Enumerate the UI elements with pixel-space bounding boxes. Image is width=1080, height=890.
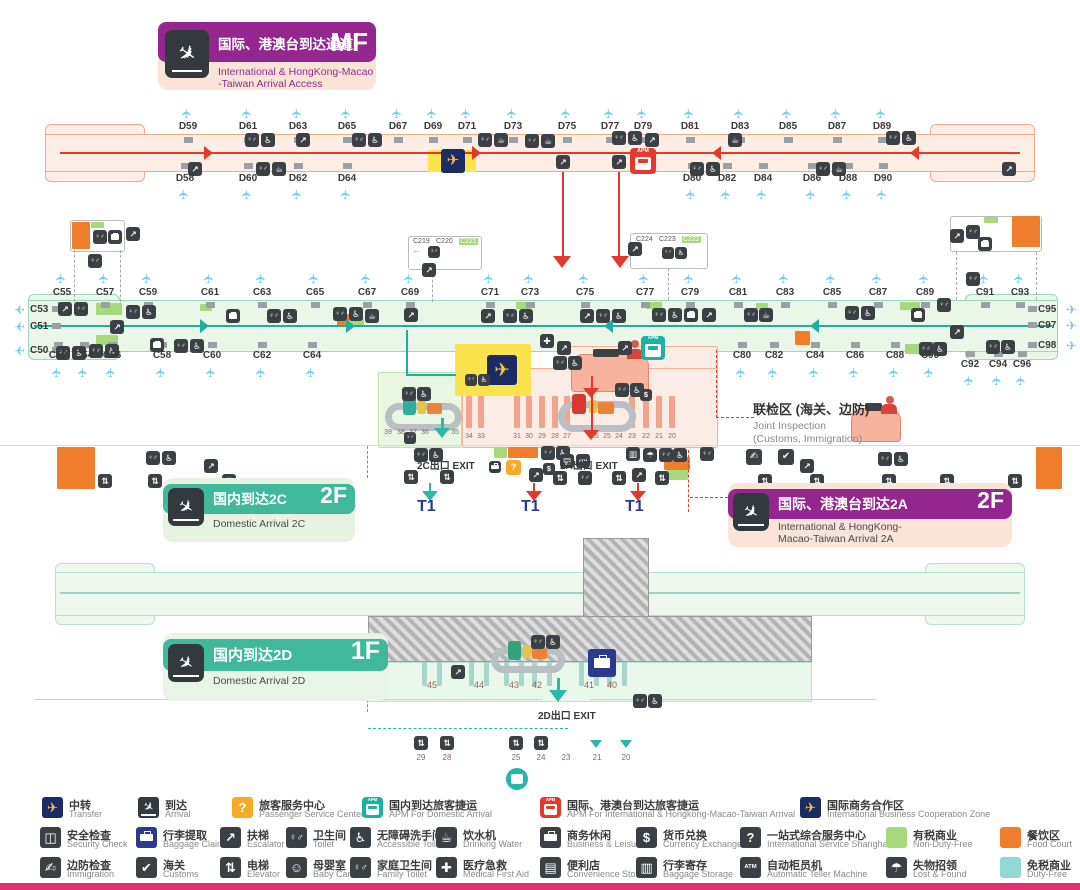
plane-icon: ✈ bbox=[50, 367, 63, 378]
gate-label-D87: D87 bbox=[828, 121, 846, 132]
toilet-icon: ♀♂ bbox=[267, 309, 281, 323]
satellite-link bbox=[74, 250, 75, 302]
plane-icon: ✈ bbox=[824, 273, 837, 284]
immigration-icon: ✍ bbox=[40, 857, 61, 878]
family-icon: ♀♂ bbox=[350, 857, 371, 878]
arrival-plane-icon: ✈ bbox=[168, 488, 204, 526]
gate-label-D79: D79 bbox=[634, 121, 652, 132]
gate-stub-D71 bbox=[463, 137, 472, 143]
accessible-icon: ♿ bbox=[478, 374, 490, 386]
toilet-icon: ♀♂ bbox=[612, 131, 626, 145]
accessible-icon: ♿ bbox=[261, 133, 275, 147]
shop-block bbox=[666, 470, 688, 480]
accessible-icon: ♿ bbox=[368, 133, 382, 147]
escalator-icon: ↗ bbox=[481, 309, 495, 323]
toilet-icon: ♀♂ bbox=[256, 162, 270, 176]
gate-stub-C57 bbox=[101, 302, 110, 308]
d2-path-dash bbox=[368, 728, 568, 729]
baby-icon: ☺ bbox=[286, 857, 307, 878]
gate-stub-C86 bbox=[851, 342, 860, 348]
elevator-icon: ⇅ bbox=[440, 736, 454, 750]
gate-label-D77: D77 bbox=[601, 121, 619, 132]
service-icon: ? bbox=[506, 460, 521, 475]
swatch-green-icon bbox=[886, 827, 907, 848]
accessible-icon: ♿ bbox=[519, 309, 533, 323]
toilet-icon: ♀♂ bbox=[633, 694, 647, 708]
escalator-icon: ↗ bbox=[422, 263, 436, 277]
toilet-icon: ♀♂ bbox=[88, 254, 102, 268]
plane-icon: ✈ bbox=[14, 344, 25, 357]
gate-stub-C71 bbox=[486, 302, 495, 308]
badge-title: 国际、港澳台到达2A bbox=[778, 494, 908, 514]
immigration-icon: ✍ bbox=[746, 449, 762, 465]
gate-stub-C98 bbox=[1028, 342, 1037, 348]
door-numbers: 29 bbox=[417, 753, 426, 762]
gate-stub-C97 bbox=[1028, 322, 1037, 328]
plane-icon: ✈ bbox=[290, 108, 303, 119]
flow-arrow bbox=[553, 256, 571, 268]
plane-icon: ✈ bbox=[559, 108, 572, 119]
plane-icon: ✈ bbox=[304, 367, 317, 378]
gate-stub-C67 bbox=[363, 302, 372, 308]
exit-2d-stub bbox=[557, 678, 560, 690]
luggage bbox=[427, 403, 442, 414]
mf-badge-code: MF bbox=[330, 27, 368, 58]
gate-stub-D62 bbox=[294, 163, 303, 169]
door-numbers: 25 bbox=[512, 753, 521, 762]
plane-icon: ✈ bbox=[807, 367, 820, 378]
accessible-icon: ♿ bbox=[673, 448, 687, 462]
gate-stub-C64 bbox=[308, 342, 317, 348]
gate-label-C69: C69 bbox=[401, 287, 419, 298]
baggage-lane bbox=[552, 396, 558, 428]
floor-separator bbox=[0, 445, 1080, 446]
gate-stub-D75 bbox=[563, 137, 572, 143]
badge-subtitle: International & HongKong- bbox=[778, 521, 902, 533]
legend-label-en: Drinking Water bbox=[463, 839, 522, 849]
plane-icon: ✈ bbox=[730, 273, 743, 284]
luggage bbox=[532, 648, 547, 659]
plane-icon: ✈ bbox=[922, 367, 935, 378]
escalator-icon: ↗ bbox=[404, 308, 418, 322]
gate-stub-C75 bbox=[581, 302, 590, 308]
customs-icon: ✔ bbox=[136, 857, 157, 878]
escalator-icon: ↗ bbox=[529, 468, 543, 482]
gate-label-C96: C96 bbox=[1013, 359, 1031, 370]
legend-label-en: Food Court bbox=[1027, 839, 1072, 849]
plane-icon: ✈ bbox=[140, 273, 153, 284]
gate-label-C51: C51 bbox=[30, 321, 48, 332]
plane-icon: ✈ bbox=[177, 189, 190, 200]
toilet-icon: ♀♂ bbox=[596, 309, 610, 323]
escalator-icon: ↗ bbox=[645, 133, 659, 147]
arrivals-corridor bbox=[55, 572, 1025, 616]
joint-callout-dash bbox=[716, 417, 754, 418]
gate-stub-D85 bbox=[784, 137, 793, 143]
officer-icon bbox=[886, 396, 894, 404]
escalator-icon: ↗ bbox=[632, 468, 646, 482]
plane-icon: ✈ bbox=[962, 375, 975, 386]
bus-icon bbox=[506, 768, 528, 790]
officer-icon bbox=[881, 404, 897, 414]
plane-icon: ✈ bbox=[202, 273, 215, 284]
lost-icon: ☂ bbox=[886, 857, 907, 878]
gate-stub-D81 bbox=[686, 137, 695, 143]
legend-label-en: Baggage Claim bbox=[163, 839, 225, 849]
gate-label-D90: D90 bbox=[874, 173, 892, 184]
gate-label-D89: D89 bbox=[873, 121, 891, 132]
structure-core bbox=[583, 538, 649, 618]
gate-label-D71: D71 bbox=[458, 121, 476, 132]
drink-icon: ☕ bbox=[272, 162, 286, 176]
elevator-icon: ⇅ bbox=[553, 471, 567, 485]
toilet-icon: ♀♂ bbox=[652, 308, 666, 322]
gate-label-C84: C84 bbox=[806, 350, 824, 361]
toilet-icon: ♀♂ bbox=[659, 448, 673, 462]
joint-en1: Joint Inspection bbox=[753, 420, 869, 432]
domestic-carousel-numbers: 39 bbox=[384, 429, 392, 436]
escalator-icon: ↗ bbox=[58, 302, 72, 316]
accessible-icon: ♿ bbox=[648, 694, 662, 708]
legend-label-en: Transfer bbox=[69, 809, 102, 819]
gate-stub-D82 bbox=[723, 163, 732, 169]
legend-label-en: APM For International & Hongkong-Macao-T… bbox=[567, 809, 795, 819]
gate-label-C52: C52 bbox=[49, 350, 67, 361]
plane-icon: ✈ bbox=[14, 320, 25, 333]
gate-label-D67: D67 bbox=[389, 121, 407, 132]
flow-arrow bbox=[549, 690, 567, 702]
desk-laptop bbox=[593, 349, 619, 358]
accessible-icon: ♿ bbox=[350, 827, 371, 848]
lost-icon: ☂ bbox=[643, 448, 657, 462]
gate-c220: C220 bbox=[436, 238, 453, 245]
toilet-icon: ♀♂ bbox=[74, 302, 88, 316]
accessible-icon: ♿ bbox=[668, 308, 682, 322]
plane-icon: ✈ bbox=[54, 273, 67, 284]
baggage-icon bbox=[136, 827, 157, 848]
door-numbers: 20 bbox=[622, 753, 631, 762]
toilet-icon: ♀♂ bbox=[531, 635, 545, 649]
legend-label-en: Family Toilet bbox=[377, 869, 427, 879]
t1-stub bbox=[429, 483, 431, 491]
plane-icon: ✈ bbox=[97, 273, 110, 284]
toilet-icon: ♀♂ bbox=[700, 447, 714, 461]
toilet-icon: ♀♂ bbox=[402, 387, 416, 401]
plane-icon: ✈ bbox=[359, 273, 372, 284]
accessible-icon: ♿ bbox=[349, 307, 363, 321]
toilet-icon: ♀♂ bbox=[352, 133, 366, 147]
gate-stub-C82 bbox=[770, 342, 779, 348]
train-glyph bbox=[544, 804, 557, 815]
domestic-carousel-numbers: 38 bbox=[397, 429, 405, 436]
plane-icon: ✈ bbox=[840, 189, 853, 200]
plane-icon: ✈ bbox=[732, 108, 745, 119]
toilet-icon: ♀♂ bbox=[478, 133, 492, 147]
gate-label-C94: C94 bbox=[989, 359, 1007, 370]
plane-icon: ✈ bbox=[482, 273, 495, 284]
plane-icon: ✈ bbox=[104, 367, 117, 378]
international-carousel-numbers: 26 bbox=[591, 433, 599, 440]
toilet-icon: ♀♂ bbox=[878, 452, 892, 466]
joint-inspection-callout: 联检区 (海关、边防) Joint Inspection (Customs, I… bbox=[753, 399, 869, 445]
plane-icon: ✈ bbox=[402, 273, 415, 284]
legend-label-en: International Service Shanghai bbox=[767, 839, 890, 849]
toilet-icon: ♀♂ bbox=[553, 356, 567, 370]
gate-label-D61: D61 bbox=[239, 121, 257, 132]
arrival-plane-icon: ✈ bbox=[733, 493, 769, 531]
elevator-icon: ⇅ bbox=[1008, 474, 1022, 488]
drink-icon: ☕ bbox=[436, 827, 457, 848]
exit-2d-label: 2D出口 EXIT bbox=[538, 707, 596, 722]
gate-stub-D64 bbox=[343, 163, 352, 169]
gate-stub-D65 bbox=[343, 137, 352, 143]
baggage-lane bbox=[526, 396, 532, 428]
legend-label-en: Non-Duty-Free bbox=[913, 839, 973, 849]
arrival-icon: ✈ bbox=[138, 797, 159, 818]
toilet-icon: ♀♂ bbox=[126, 305, 140, 319]
plane-icon: ✈ bbox=[602, 108, 615, 119]
carousel-2d-numbers: 43 bbox=[509, 680, 519, 690]
plane-icon: ✈ bbox=[307, 273, 320, 284]
business-icon bbox=[911, 308, 925, 322]
c-corridor-flow-line bbox=[34, 325, 1052, 327]
legend-label-en: Elevator bbox=[247, 869, 280, 879]
bus-glyph bbox=[511, 774, 524, 784]
toilet-icon: ♀♂ bbox=[465, 374, 477, 386]
domestic-carousel-numbers: 35 bbox=[451, 429, 459, 436]
drink-icon: ☕ bbox=[494, 133, 508, 147]
gate-label-D60: D60 bbox=[239, 173, 257, 184]
flow-arrow bbox=[611, 256, 629, 268]
legend-label-en: APM For Domestic Arrival bbox=[389, 809, 492, 819]
train-glyph bbox=[366, 804, 379, 815]
satellite-link bbox=[956, 252, 957, 300]
plane-icon: ✈ bbox=[874, 108, 887, 119]
accessible-icon: ♿ bbox=[546, 635, 560, 649]
gate-label-C71: C71 bbox=[481, 287, 499, 298]
business-icon bbox=[978, 237, 992, 251]
business-icon bbox=[540, 827, 561, 848]
plane-icon: ✈ bbox=[1066, 339, 1077, 352]
legend-label-en: Immigration bbox=[67, 869, 114, 879]
toilet-icon: ♀♂ bbox=[662, 247, 674, 259]
gate-label-C58: C58 bbox=[153, 350, 171, 361]
international-carousel-numbers: 21 bbox=[655, 433, 663, 440]
escalator-icon: ↗ bbox=[1002, 162, 1016, 176]
gate-label-D69: D69 bbox=[424, 121, 442, 132]
briefcase-glyph bbox=[140, 834, 153, 842]
baggage-lane bbox=[514, 396, 520, 428]
international-carousel-numbers: 30 bbox=[525, 433, 533, 440]
accessible-icon: ♿ bbox=[894, 452, 908, 466]
plane-icon: ✈ bbox=[734, 367, 747, 378]
escalator-icon: ↗ bbox=[110, 320, 124, 334]
plane-icon: ✈ bbox=[755, 189, 768, 200]
elevator-icon: ⇅ bbox=[414, 736, 428, 750]
toilet-icon: ♀♂ bbox=[966, 272, 980, 286]
plane-icon: ✈ bbox=[522, 273, 535, 284]
intl-flow-baggage bbox=[591, 376, 593, 436]
gate-label-C97: C97 bbox=[1038, 320, 1056, 331]
toilet-icon: ♀♂ bbox=[245, 133, 259, 147]
elevator-icon: ⇅ bbox=[404, 470, 418, 484]
gate-label-C67: C67 bbox=[358, 287, 376, 298]
gate-label-C92: C92 bbox=[961, 359, 979, 370]
toilet-icon: ♀♂ bbox=[986, 340, 1000, 354]
badge-subtitle: Domestic Arrival 2C bbox=[213, 518, 305, 530]
toilet-icon: ♀♂ bbox=[146, 451, 160, 465]
plane-icon: ✈ bbox=[1066, 303, 1077, 316]
toilet-icon: ♀♂ bbox=[615, 383, 629, 397]
gate-stub-C60 bbox=[208, 342, 217, 348]
international-carousel-numbers: 34 bbox=[465, 433, 473, 440]
legend-label-en: Baggage Storage bbox=[663, 869, 733, 879]
elevator-icon: ⇅ bbox=[612, 471, 626, 485]
gate-stub-C91 bbox=[981, 302, 990, 308]
gate-c219: C219 bbox=[413, 238, 430, 245]
swatch-orange-icon bbox=[1000, 827, 1021, 848]
mf-badge-subtitle1: International & HongKong-Macao bbox=[218, 66, 373, 78]
luggage bbox=[598, 402, 614, 414]
door-numbers: 23 bbox=[562, 753, 571, 762]
plane-icon: ✈ bbox=[780, 108, 793, 119]
legend-label-en: Convenience Store bbox=[567, 869, 644, 879]
t1-stub bbox=[637, 483, 639, 491]
intl-business-icon: ✈ bbox=[800, 797, 821, 818]
legend-label-en: Lost & Found bbox=[913, 869, 967, 879]
legend-label-en: International Business Cooperation Zone bbox=[827, 809, 990, 819]
legend-label-en: Toilet bbox=[313, 839, 334, 849]
badge-title: 国内到达2D bbox=[213, 644, 292, 665]
t1-marker: T1 bbox=[625, 498, 644, 516]
flow-arrow bbox=[434, 428, 450, 438]
gate-stub-C95 bbox=[1028, 306, 1037, 312]
gate-stub-C96 bbox=[1018, 351, 1027, 357]
joint-title: 联检区 (海关、边防) bbox=[753, 399, 869, 418]
food-court-block bbox=[1012, 216, 1040, 247]
flow-arrow bbox=[712, 146, 721, 160]
a2-callout-dash bbox=[690, 497, 728, 498]
flow-arrow bbox=[472, 146, 481, 160]
arrival-plane-icon: ✈ bbox=[165, 30, 209, 78]
toilet-icon: ♀♂ bbox=[541, 446, 555, 460]
luggage bbox=[418, 400, 426, 414]
toilet-icon: ♀♂ bbox=[174, 339, 188, 353]
escalator-icon: ↗ bbox=[556, 155, 570, 169]
accessible-icon: ♿ bbox=[568, 356, 582, 370]
gate-label-C63: C63 bbox=[253, 287, 271, 298]
flow-arrow bbox=[200, 319, 209, 333]
drink-icon: ☕ bbox=[365, 309, 379, 323]
international-carousel-numbers: 29 bbox=[538, 433, 546, 440]
medical-icon: ✚ bbox=[436, 857, 457, 878]
plane-icon: ✈ bbox=[1012, 273, 1025, 284]
baggage-icon bbox=[588, 649, 616, 677]
flow-arrow bbox=[810, 319, 819, 333]
plane-icon: ✈ bbox=[339, 108, 352, 119]
toilet-icon: ♀♂ bbox=[845, 306, 859, 320]
domestic-flow-branch bbox=[406, 330, 408, 376]
a2-callout-dash bbox=[688, 450, 689, 512]
gate-label-D58: D58 bbox=[176, 173, 194, 184]
gate-label-D75: D75 bbox=[558, 121, 576, 132]
apm-label: APM bbox=[630, 149, 656, 154]
plane-icon: ✈ bbox=[339, 189, 352, 200]
carousel-finger bbox=[437, 660, 442, 686]
legend-label-en: Customs bbox=[163, 869, 199, 879]
escalator-icon: ↗ bbox=[557, 341, 571, 355]
escalator-icon: ↗ bbox=[204, 459, 218, 473]
food-court-block bbox=[1036, 447, 1062, 489]
accessible-icon: ♿ bbox=[902, 131, 916, 145]
gate-stub-D67 bbox=[394, 137, 403, 143]
gate-label-C87: C87 bbox=[869, 287, 887, 298]
carousel-2d-numbers: 40 bbox=[607, 680, 617, 690]
international-carousel-numbers: 25 bbox=[603, 433, 611, 440]
t1-marker: T1 bbox=[417, 498, 436, 516]
accessible-icon: ♿ bbox=[162, 451, 176, 465]
exit-2c-label: 2C出口 EXIT bbox=[417, 457, 475, 472]
door-numbers: 21 bbox=[593, 753, 602, 762]
elevator-icon: ⇅ bbox=[148, 474, 162, 488]
apm-teal-icon: APM bbox=[641, 336, 665, 360]
badge-subtitle2: Macao-Taiwan Arrival 2A bbox=[778, 533, 894, 545]
gate-stub-C51 bbox=[52, 323, 61, 329]
legend-label-en: Accessible Toilet bbox=[377, 839, 443, 849]
gate-c221: C221 bbox=[459, 238, 478, 245]
drink-icon: ☕ bbox=[759, 308, 773, 322]
gate-stub-C80 bbox=[738, 342, 747, 348]
customs-icon: ✔ bbox=[778, 449, 794, 465]
domestic-baggage-stub bbox=[441, 418, 444, 428]
gate-label-D82: D82 bbox=[718, 173, 736, 184]
gate-label-C82: C82 bbox=[765, 350, 783, 361]
gate-label-C57: C57 bbox=[96, 287, 114, 298]
food-court-block bbox=[508, 447, 538, 458]
satellite-link bbox=[120, 250, 121, 302]
door-numbers: 24 bbox=[537, 753, 546, 762]
plane-icon: ✈ bbox=[870, 273, 883, 284]
atm-icon: ATM bbox=[740, 857, 761, 878]
badge-floor: 1F bbox=[351, 637, 380, 666]
toilet-icon: ♀♂ bbox=[525, 134, 539, 148]
gate-stub-C83 bbox=[781, 302, 790, 308]
escalator-icon: ↗ bbox=[800, 459, 814, 473]
plane-icon: ✈ bbox=[682, 108, 695, 119]
plane-icon: ✈ bbox=[682, 273, 695, 284]
gate-stub-D73 bbox=[509, 137, 518, 143]
gate-label-C56: C56 bbox=[103, 350, 121, 361]
elevator-icon: ⇅ bbox=[534, 736, 548, 750]
briefcase-glyph bbox=[594, 658, 611, 669]
officer-icon bbox=[631, 340, 639, 348]
gate-stub-C84 bbox=[811, 342, 820, 348]
mf-badge-subtitle2: -Taiwan Arrival Access bbox=[218, 78, 322, 90]
gate-label-C86: C86 bbox=[846, 350, 864, 361]
gate-stub-C85 bbox=[828, 302, 837, 308]
carousel-2d-numbers: 44 bbox=[474, 680, 484, 690]
satellite-link bbox=[668, 268, 669, 300]
domestic-arrival-2d-badge: ✈ 国内到达2D 1F Domestic Arrival 2D bbox=[163, 633, 388, 701]
gate-label-D59: D59 bbox=[179, 121, 197, 132]
gate-stub-C87 bbox=[874, 302, 883, 308]
plane-icon: ✈ bbox=[804, 189, 817, 200]
bottom-accent-bar bbox=[0, 883, 1080, 890]
domestic-carousel-numbers: 36 bbox=[421, 429, 429, 436]
luggage bbox=[523, 645, 531, 658]
business-icon bbox=[684, 308, 698, 322]
apm-red-icon: APM bbox=[540, 797, 561, 818]
